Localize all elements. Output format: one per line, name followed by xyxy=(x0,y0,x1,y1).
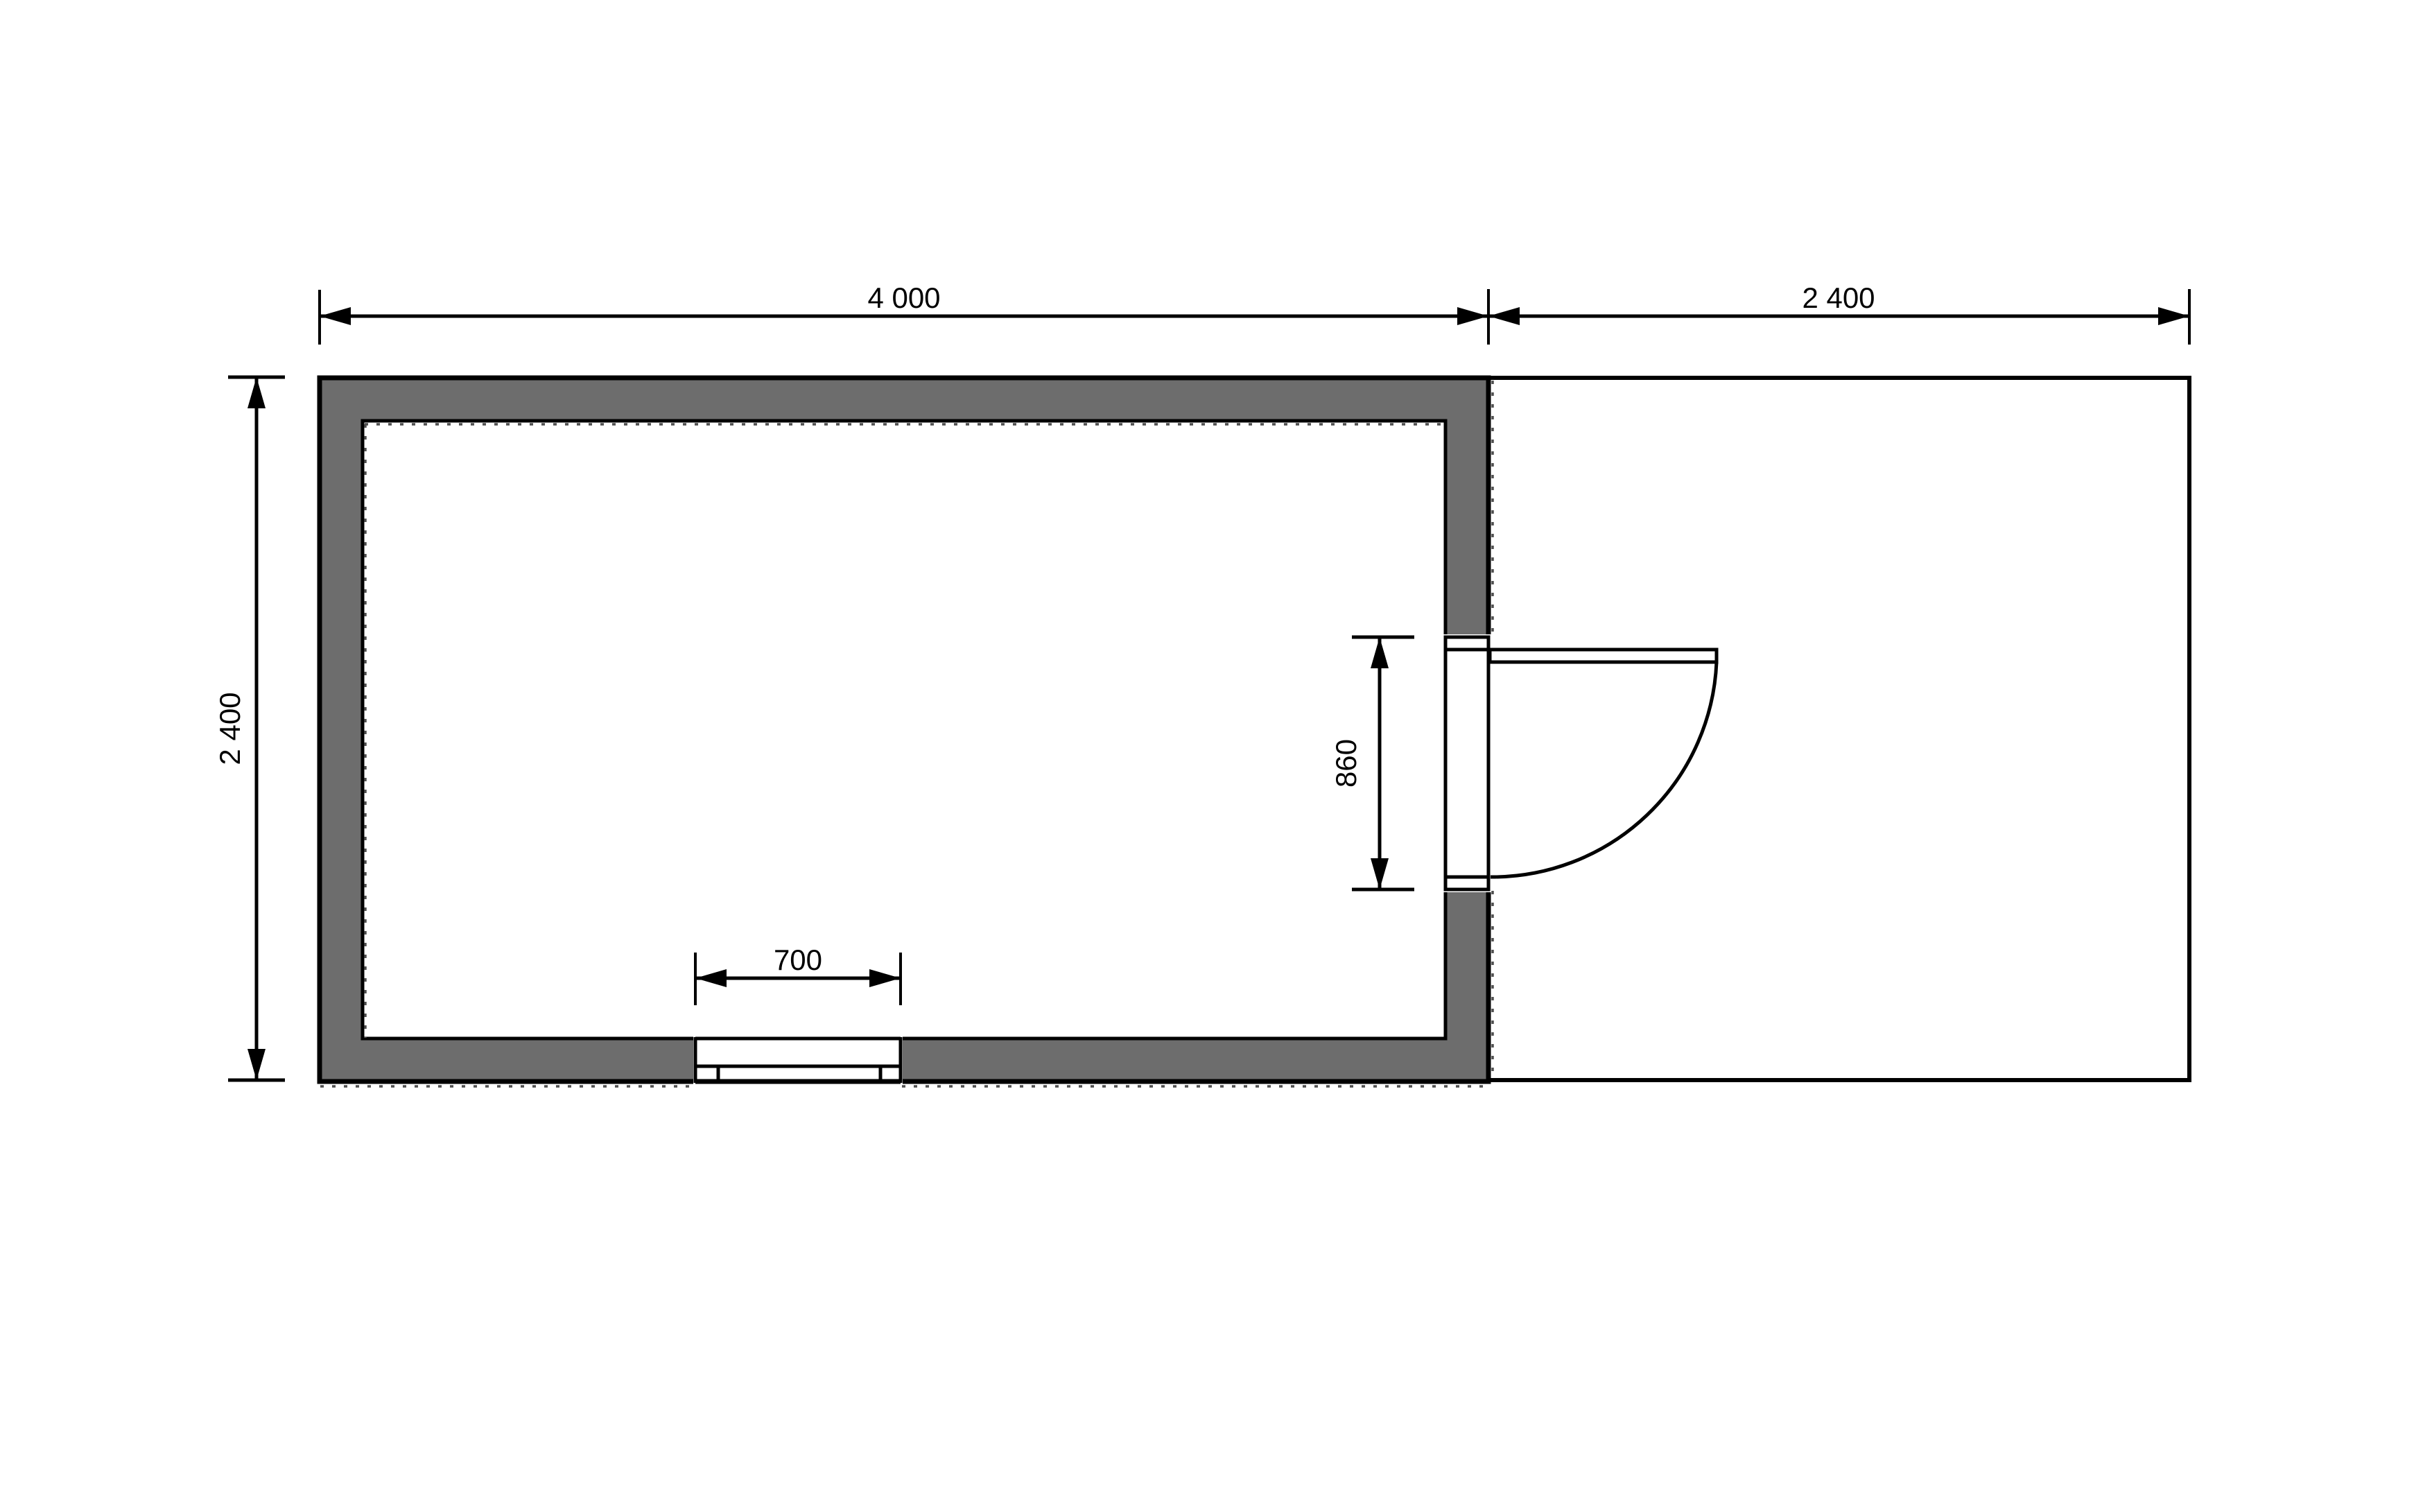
dimension-building-depth: 2 400 xyxy=(214,377,285,1080)
dim-arrow-right xyxy=(2158,307,2189,325)
dim-arrow-bottom xyxy=(247,1049,266,1080)
door-leaf xyxy=(1490,650,1717,662)
floor-plan-canvas: 4 000 2 400 2 400 860 xyxy=(0,0,2432,1512)
drawing-sheet: 4 000 2 400 2 400 860 xyxy=(0,0,2432,1512)
dim-label-building-width: 4 000 xyxy=(867,281,940,314)
terrace-outline xyxy=(1488,378,2189,1080)
door-opening xyxy=(1443,634,1492,892)
door-jamb-top xyxy=(1445,637,1488,650)
dim-label-window-width: 700 xyxy=(774,944,822,976)
dim-label-terrace-width: 2 400 xyxy=(1802,281,1875,314)
dimension-terrace-width: 2 400 xyxy=(1488,281,2189,345)
dim-label-building-depth: 2 400 xyxy=(214,692,246,765)
dimension-building-width: 4 000 xyxy=(320,281,1488,345)
window xyxy=(693,1036,903,1084)
dim-label-door-opening: 860 xyxy=(1330,739,1362,788)
dim-arrow-left xyxy=(320,307,351,325)
dim-arrow-right xyxy=(1457,307,1488,325)
window-opening xyxy=(693,1036,903,1084)
dim-arrow-top xyxy=(247,377,266,408)
room-inner-boundary xyxy=(363,421,1445,1039)
dim-arrow-left xyxy=(1488,307,1520,325)
door-jamb-bottom xyxy=(1445,877,1488,889)
